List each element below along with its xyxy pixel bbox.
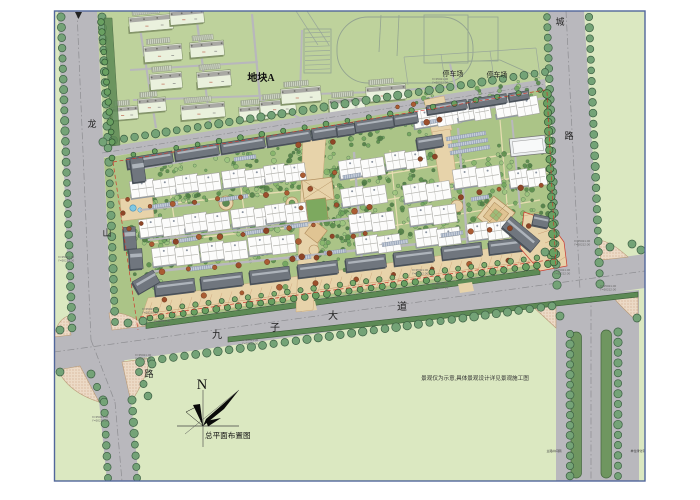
- svg-text:Y=50212.00: Y=50212.00: [574, 242, 591, 246]
- svg-text:Y=50212.00: Y=50212.00: [242, 341, 259, 345]
- svg-text:九: 九: [212, 329, 222, 341]
- svg-text:地块A: 地块A: [247, 71, 275, 84]
- svg-text:总平面布置图: 总平面布置图: [205, 430, 251, 440]
- svg-text:道: 道: [397, 300, 407, 313]
- svg-text:Y=50212.00: Y=50212.00: [432, 285, 449, 289]
- svg-text:子: 子: [270, 322, 280, 334]
- svg-text:Y=50212.00: Y=50212.00: [412, 271, 429, 275]
- svg-text:Y=50212.00: Y=50212.00: [92, 418, 109, 422]
- svg-text:Y=50212.00: Y=50212.00: [142, 310, 159, 314]
- svg-text:停车场: 停车场: [487, 70, 508, 79]
- svg-text:Y=50212.00: Y=50212.00: [432, 80, 449, 84]
- svg-text:Y=50212.00: Y=50212.00: [554, 271, 571, 275]
- svg-text:Y=50212.00: Y=50212.00: [600, 287, 617, 291]
- svg-text:大: 大: [328, 309, 338, 322]
- svg-text:景观仅为示意,具体景观设计详见景观施工图: 景观仅为示意,具体景观设计详见景观施工图: [421, 374, 529, 382]
- svg-text:龙: 龙: [87, 118, 96, 129]
- svg-text:城: 城: [555, 17, 564, 27]
- svg-text:路: 路: [144, 368, 153, 379]
- svg-text:山: 山: [102, 228, 111, 238]
- svg-text:Y=50212.00: Y=50212.00: [135, 356, 152, 360]
- svg-text:Y=50212.00: Y=50212.00: [58, 258, 75, 262]
- svg-text:路: 路: [564, 130, 573, 141]
- svg-text:Y=50212.00: Y=50212.00: [154, 322, 171, 326]
- svg-text:N: N: [197, 377, 208, 393]
- svg-text:单位绿化带: 单位绿化带: [630, 448, 645, 453]
- svg-text:主路中间隔: 主路中间隔: [546, 448, 561, 453]
